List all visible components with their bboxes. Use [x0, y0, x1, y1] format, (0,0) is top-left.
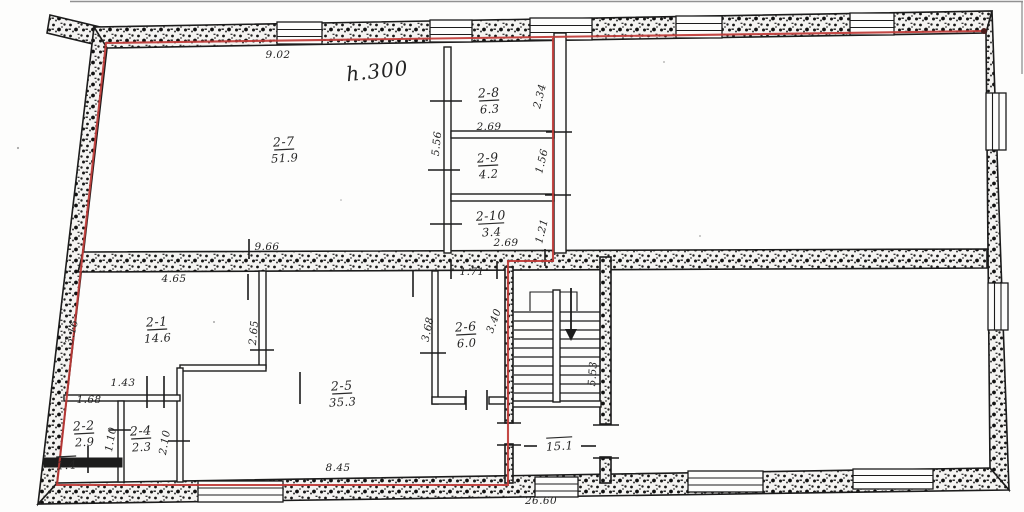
room-label: 2-86.3 [477, 84, 501, 116]
red-outline-endpoint [981, 28, 987, 34]
room-label: 2-22.9 [72, 417, 96, 449]
room-area: 1.4 [57, 457, 77, 472]
room-label: 1.4 [56, 456, 77, 473]
room-area: 2.9 [74, 434, 95, 449]
dimension-label: 9.66 [255, 241, 280, 253]
window [988, 283, 1008, 330]
dimension-label: 5.53 [586, 361, 600, 387]
dimension-label: 2.69 [493, 237, 519, 249]
scanned-sheet: 9.02h.3005.562.692.341.561.219.662.694.6… [0, 0, 1024, 512]
room-area: 6.3 [480, 101, 500, 116]
room-label: 2-42.3 [129, 422, 153, 454]
room-area: 35.3 [329, 394, 357, 409]
stair-right-wall [600, 457, 611, 483]
dimension-label: 1.68 [77, 394, 102, 406]
room-label: 2-535.3 [328, 377, 357, 409]
window [688, 471, 763, 492]
room-label: 2-751.9 [270, 133, 299, 165]
room-area: 51.9 [271, 150, 299, 165]
room-area: 3.4 [482, 224, 502, 239]
overall-width-dimension: 26.60 [524, 495, 557, 507]
floor-plan-drawing: 9.02h.3005.562.692.341.561.219.662.694.6… [0, 0, 1024, 512]
room-number: 2-4 [129, 422, 152, 438]
dimension-label: 2.69 [476, 121, 502, 133]
room-label: 2-114.6 [143, 313, 172, 345]
room-number: 2-5 [330, 377, 353, 393]
dimension-label: 2.65 [247, 320, 261, 347]
dimension-label: 1.43 [111, 377, 136, 389]
window [853, 469, 933, 489]
stair-stringer [553, 290, 560, 402]
room-number: 2-10 [474, 207, 506, 224]
dimension-label: 1.71 [460, 266, 485, 278]
room-number: 2-6 [454, 318, 477, 334]
room-label: 15.1 [546, 437, 574, 454]
room-label: 2-94.2 [476, 149, 500, 181]
room-area: 14.6 [144, 330, 172, 345]
room-number: 2-8 [477, 84, 500, 100]
dimension-label: 8.45 [326, 462, 351, 474]
room-number: 2-9 [476, 149, 499, 165]
room-area: 4.2 [478, 166, 499, 181]
stair-right-wall [600, 257, 611, 424]
room-number: 2-2 [72, 417, 95, 433]
window [535, 477, 578, 497]
dimension-label: 4.65 [161, 273, 187, 285]
room-number: 2-1 [145, 313, 168, 329]
room-label: 2-66.0 [454, 318, 478, 350]
room-number: 2-7 [272, 133, 295, 149]
room-area: 2.3 [131, 439, 152, 454]
room-area: 6.0 [457, 335, 477, 350]
room-area: 15.1 [546, 438, 574, 453]
dimension-label: 9.02 [266, 49, 291, 61]
window [986, 93, 1006, 150]
